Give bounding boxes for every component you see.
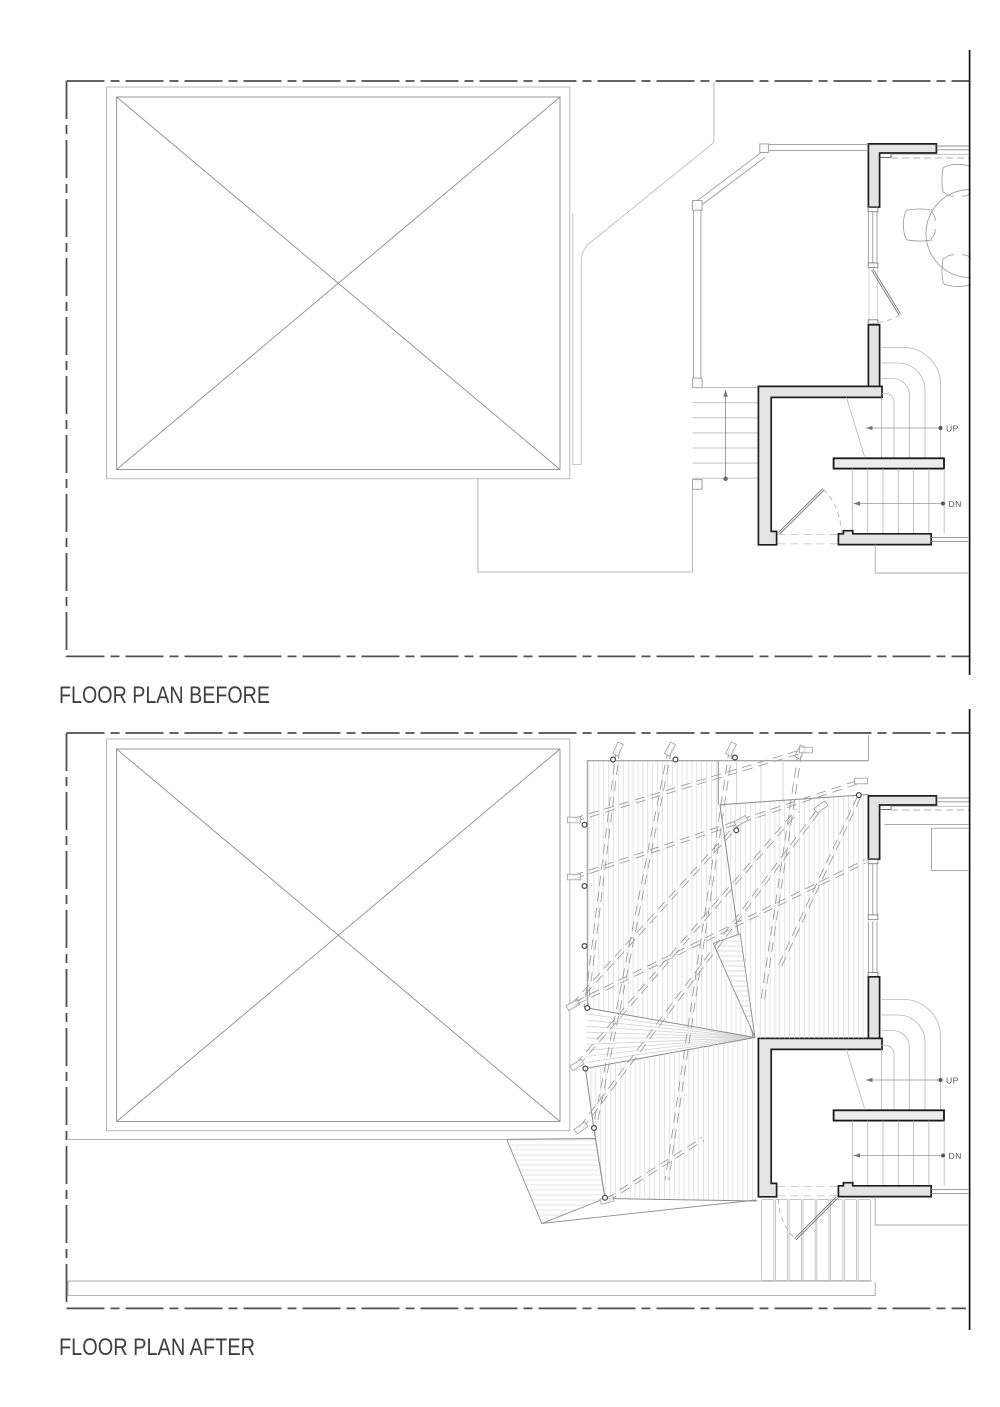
svg-text:UP: UP	[946, 1075, 959, 1085]
svg-text:FLOOR PLAN AFTER: FLOOR PLAN AFTER	[59, 1334, 255, 1361]
svg-text:DN: DN	[949, 499, 962, 509]
svg-text:UP: UP	[946, 423, 959, 433]
svg-text:DN: DN	[949, 1151, 962, 1161]
svg-text:FLOOR PLAN BEFORE: FLOOR PLAN BEFORE	[59, 682, 270, 709]
